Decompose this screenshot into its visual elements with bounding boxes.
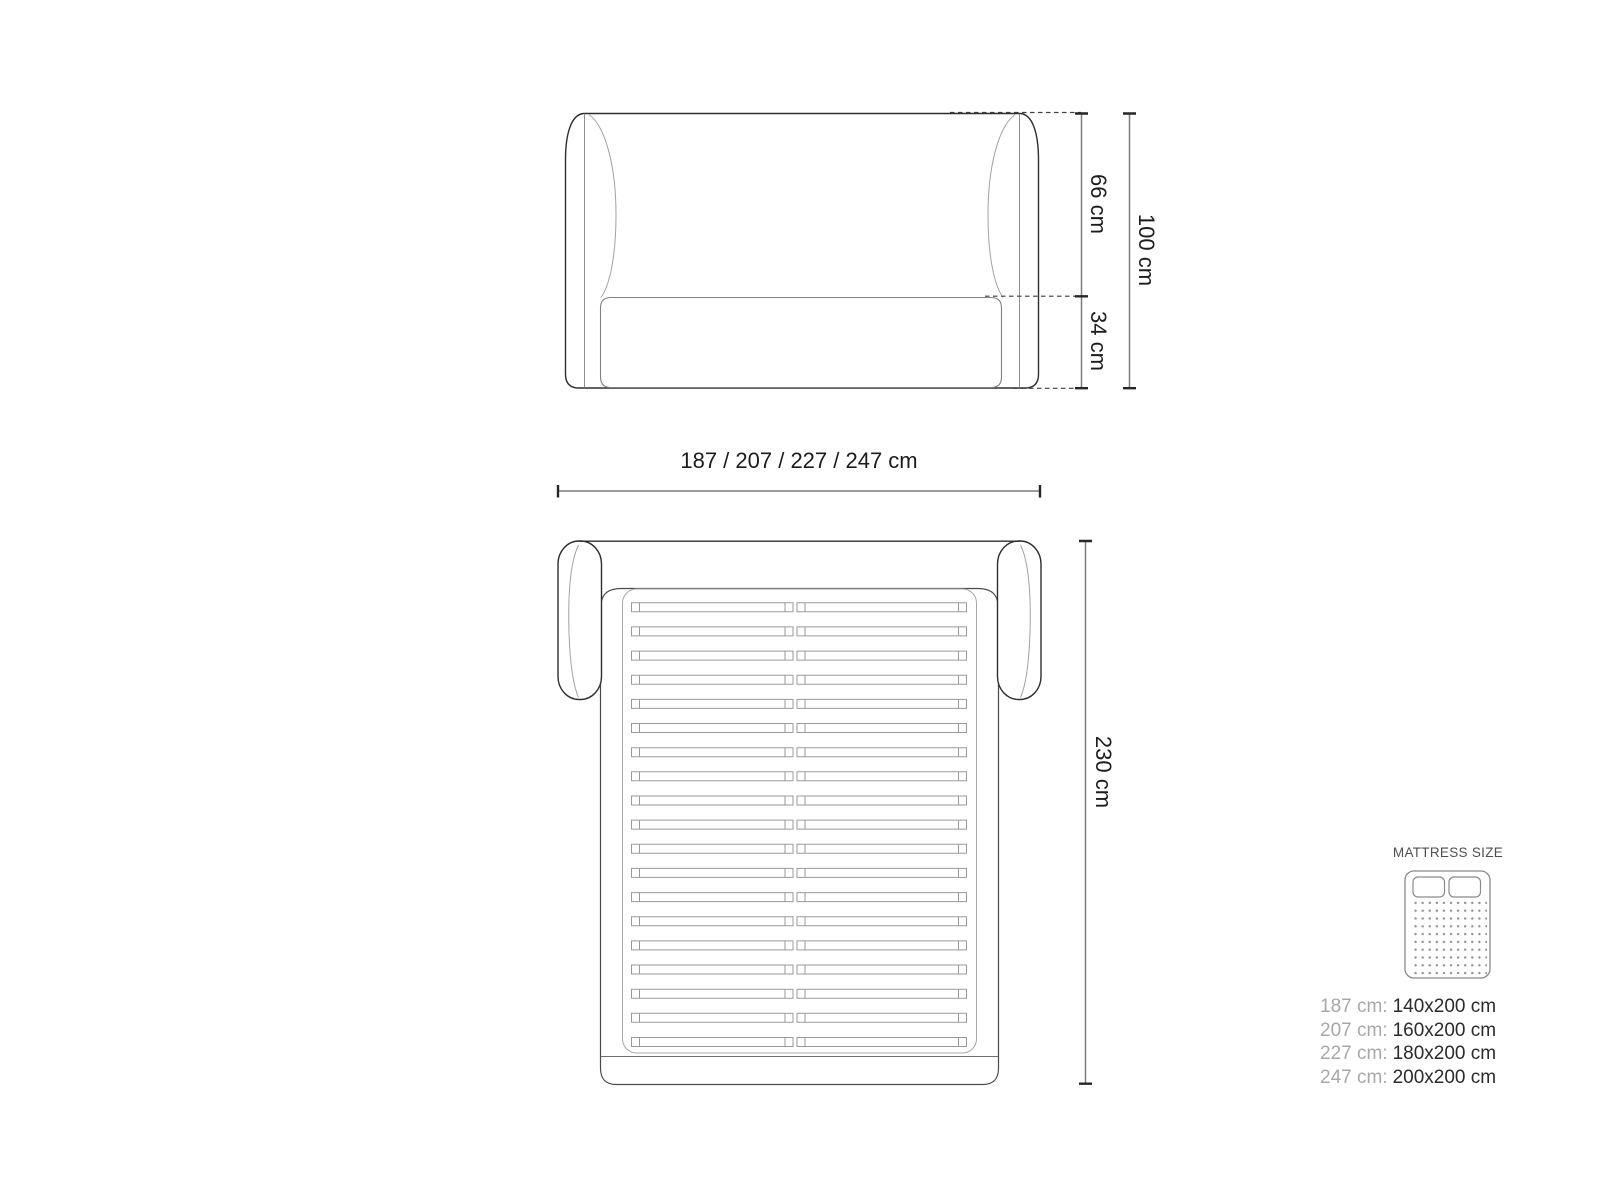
- width-dimension-line: [558, 485, 1040, 498]
- size-row-value: 180x200 cm: [1393, 1043, 1497, 1064]
- size-row-label: 207 cm:: [1320, 1020, 1388, 1041]
- size-row-value: 140x200 cm: [1393, 996, 1497, 1017]
- size-row-value: 200x200 cm: [1393, 1067, 1497, 1088]
- bed-top-view: [558, 541, 1092, 1085]
- size-row-label: 247 cm:: [1320, 1067, 1388, 1088]
- headboard-left-wing: [558, 541, 602, 700]
- bed-front-view: [566, 113, 1137, 389]
- bed-dimension-diagram: 66 cm 34 cm 100 cm 187 / 207 / 227 / 247…: [0, 0, 1600, 1200]
- mattress-size-list: 187 cm:140x200 cm 207 cm:160x200 cm 227 …: [1320, 995, 1492, 1089]
- dim-label-34cm: 34 cm: [1085, 296, 1111, 386]
- mattress-size-row: 247 cm:200x200 cm: [1320, 1066, 1492, 1090]
- mattress-size-title: MATTRESS SIZE: [1393, 845, 1503, 860]
- mattress-tufting-dots: [1412, 899, 1487, 976]
- mattress-size-row: 207 cm:160x200 cm: [1320, 1019, 1492, 1043]
- mattress-size-row: 187 cm:140x200 cm: [1320, 995, 1492, 1019]
- dim-label-100cm: 100 cm: [1133, 205, 1159, 295]
- mattress-size-row: 227 cm:180x200 cm: [1320, 1042, 1492, 1066]
- size-row-label: 187 cm:: [1320, 996, 1388, 1017]
- dim-label-widths: 187 / 207 / 227 / 247 cm: [679, 448, 919, 474]
- size-row-label: 227 cm:: [1320, 1043, 1388, 1064]
- dim-label-66cm: 66 cm: [1085, 159, 1111, 249]
- headboard-right-wing: [998, 541, 1042, 700]
- dim-label-230cm: 230 cm: [1090, 727, 1116, 817]
- size-row-value: 160x200 cm: [1393, 1020, 1497, 1041]
